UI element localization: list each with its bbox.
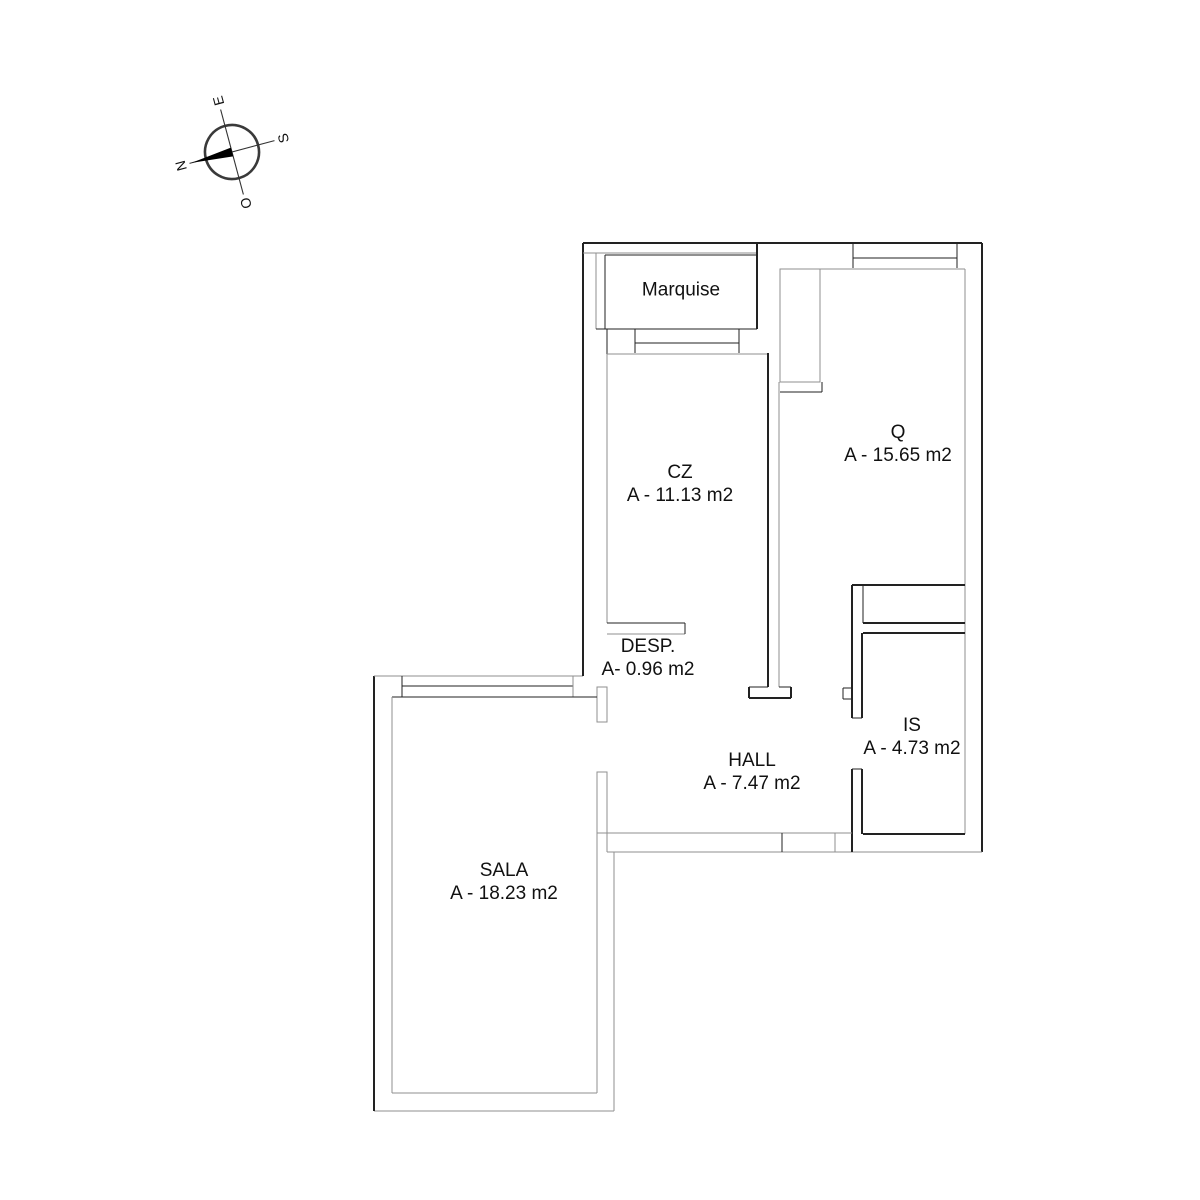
room-name: Q bbox=[844, 421, 952, 444]
wall-sala-hall-lower bbox=[597, 772, 607, 833]
room-name: SALA bbox=[450, 859, 558, 882]
room-label-marquise: Marquise bbox=[642, 279, 720, 302]
compass-rose: N E S O bbox=[158, 81, 306, 225]
floor-plan-canvas: N E S O Marquise CZ A - 11.13 m2 Q A - 1… bbox=[0, 0, 1200, 1200]
room-name: Marquise bbox=[642, 279, 720, 302]
room-label-desp: DESP. A- 0.96 m2 bbox=[602, 635, 695, 681]
room-area: A - 4.73 m2 bbox=[863, 737, 960, 760]
room-area: A- 0.96 m2 bbox=[602, 658, 695, 681]
room-area: A - 15.65 m2 bbox=[844, 444, 952, 467]
wall-band bbox=[583, 686, 700, 697]
compass-label-n: N bbox=[172, 159, 190, 173]
room-area: A - 18.23 m2 bbox=[450, 882, 558, 905]
room-label-is: IS A - 4.73 m2 bbox=[863, 714, 960, 760]
compass-label-s: S bbox=[274, 132, 292, 145]
room-label-hall: HALL A - 7.47 m2 bbox=[703, 749, 800, 795]
room-name: DESP. bbox=[602, 635, 695, 658]
floor-plan-drawing: N E S O bbox=[0, 0, 1200, 1200]
room-label-q: Q A - 15.65 m2 bbox=[844, 421, 952, 467]
closet-q bbox=[780, 269, 820, 382]
compass-label-o: O bbox=[237, 196, 255, 211]
room-name: HALL bbox=[703, 749, 800, 772]
room-label-sala: SALA A - 18.23 m2 bbox=[450, 859, 558, 905]
compass-needle bbox=[190, 148, 233, 168]
wall-sala-hall-upper bbox=[597, 687, 607, 722]
room-label-cz: CZ A - 11.13 m2 bbox=[627, 461, 733, 507]
room-name: IS bbox=[863, 714, 960, 737]
room-name: CZ bbox=[627, 461, 733, 484]
compass-label-e: E bbox=[209, 94, 227, 107]
room-area: A - 11.13 m2 bbox=[627, 484, 733, 507]
room-area: A - 7.47 m2 bbox=[703, 772, 800, 795]
